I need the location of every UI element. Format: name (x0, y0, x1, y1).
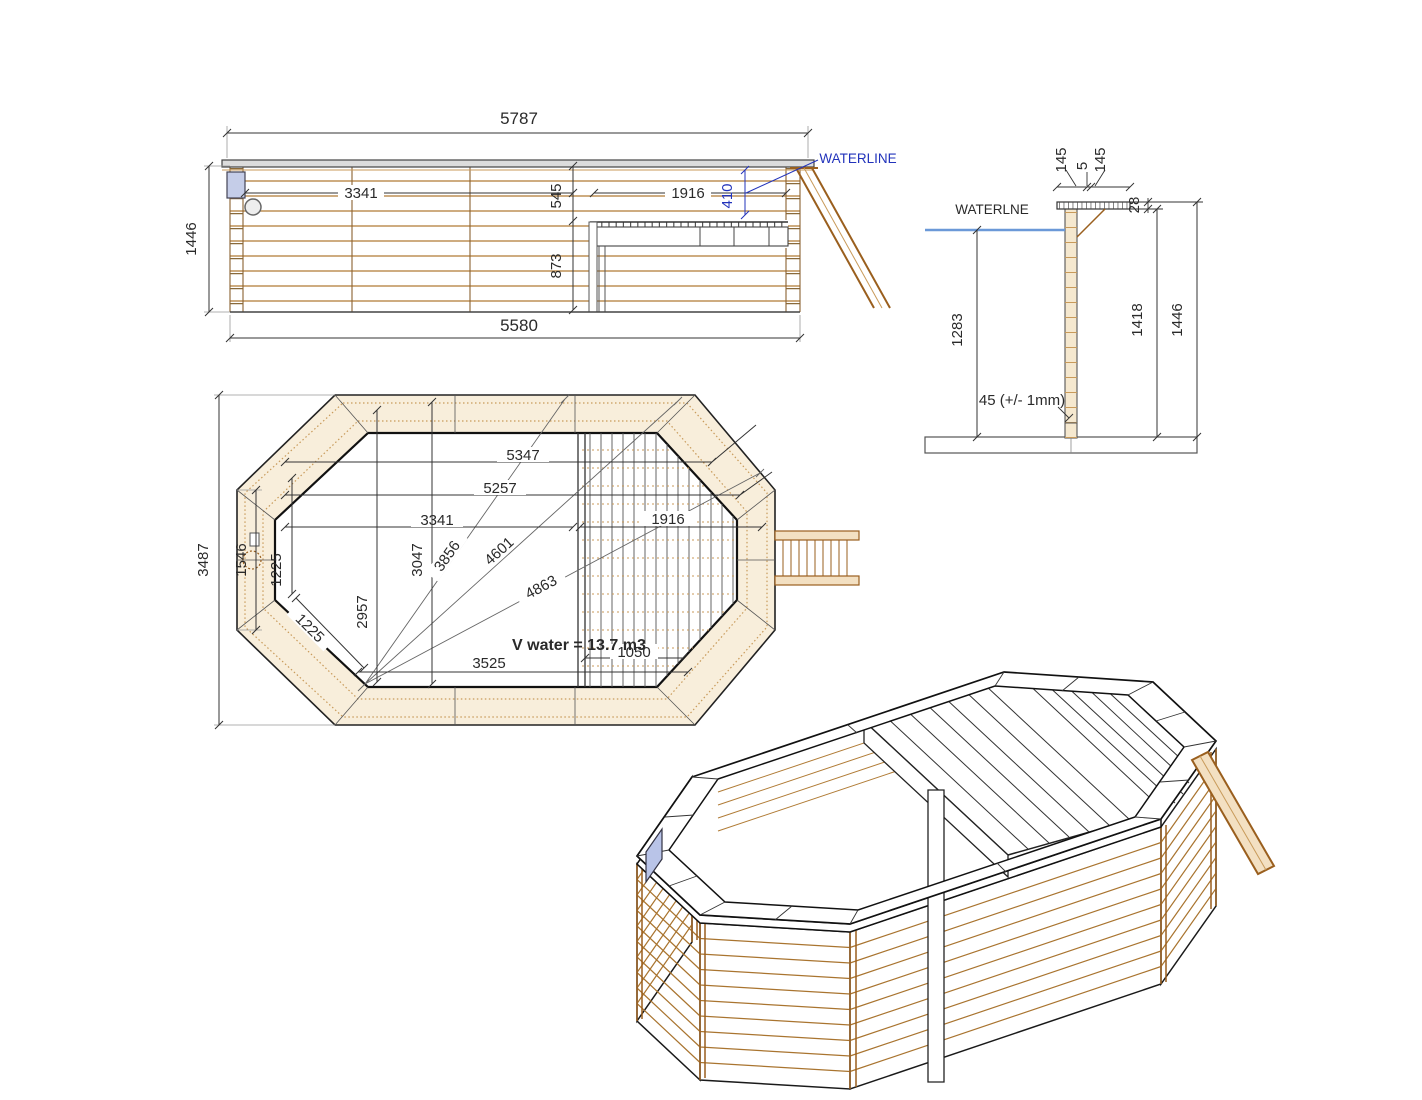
dim-overall-width: 5787 (500, 109, 538, 128)
plan-ladder-rail-top (775, 531, 859, 540)
volume-label: V water = 13.7 m3 (512, 637, 646, 654)
plan-skimmer (250, 533, 259, 546)
dim-overall-height: 1446 (1169, 303, 1186, 336)
plan-ladder-rungs (783, 540, 847, 576)
plan-ladder-rail-bottom (775, 576, 859, 585)
dim-line-1446 (205, 162, 213, 316)
dim-corner-offset: 1225 (268, 553, 285, 586)
deck-joists (596, 227, 788, 246)
dim-line-3487 (215, 391, 223, 729)
dim-coping-inner: 145 (1092, 147, 1109, 172)
dim-diag-long: 5347 (506, 447, 539, 464)
label-ray-mid: 4601 (474, 528, 524, 575)
ext-lines-top (227, 126, 808, 158)
waterline-label: WATERLINE (819, 151, 896, 166)
dim-ray-long: 4863 (523, 572, 560, 603)
skimmer-box (227, 172, 245, 198)
dim-line-5787 (223, 129, 812, 137)
deck-post (589, 222, 597, 312)
dim-inner-width-b: 2957 (354, 595, 371, 628)
dim-line-3047 (428, 398, 436, 688)
wall-column (1065, 205, 1077, 438)
coping-rail (222, 160, 814, 167)
technical-drawing-page: 5787 1446 5580 3341 1916 545 873 410 WAT… (0, 0, 1422, 1100)
dim-span-deck: 1916 (651, 511, 684, 528)
dim-line-3525 (354, 668, 692, 676)
dim-lower-drop: 873 (548, 253, 565, 278)
dim-left-span: 3341 (344, 185, 377, 202)
view-wall-section: WATERLNE 145 5 145 28 1283 1418 1446 45 … (925, 147, 1203, 453)
dim-water-depth: 1283 (949, 313, 966, 346)
elevation-ladder (790, 168, 890, 308)
dim-line-2957 (373, 406, 381, 686)
view-plan: 5347 5257 3341 1916 3487 1546 3047 2957 … (195, 391, 859, 729)
iso-deck-support-post (928, 790, 944, 1082)
note-floor-plank: 45 (+/- 1mm) (979, 392, 1065, 409)
dim-wall-height: 1418 (1129, 303, 1146, 336)
dim-side-panel: 1546 (233, 543, 250, 576)
view-side-elevation: 5787 1446 5580 3341 1916 545 873 410 WAT… (183, 109, 897, 342)
dim-overall-width-plan: 3487 (195, 543, 212, 576)
dim-span-left: 3341 (420, 512, 453, 529)
dim-base-width: 5580 (500, 316, 538, 335)
ring-inner-outline (275, 433, 737, 687)
dim-coping-gap: 5 (1074, 162, 1091, 170)
dim-coping-thickness: 28 (1126, 197, 1143, 214)
return-fitting (245, 199, 261, 215)
dim-coping-outer: 145 (1053, 147, 1070, 172)
wall-ring (237, 395, 775, 725)
section-waterline-label: WATERLNE (955, 202, 1029, 217)
dim-rim-drop: 545 (548, 183, 565, 208)
elevation-ladder-rail (804, 168, 882, 308)
dim-inner-width: 3047 (409, 543, 426, 576)
view-isometric (637, 672, 1274, 1089)
dim-diag-second: 5257 (483, 480, 516, 497)
dim-line-5580 (226, 334, 804, 342)
dim-total-height: 1446 (183, 222, 200, 255)
coping-section (1057, 202, 1130, 209)
base-slab (925, 437, 1197, 453)
label-ray-long: 4863 (514, 568, 568, 607)
coping-brace (1077, 209, 1105, 237)
dim-waterline-drop: 410 (719, 183, 736, 208)
dim-right-span: 1916 (671, 185, 704, 202)
dim-line-545-873 (569, 162, 577, 314)
ext-lines-left (204, 166, 230, 312)
dim-floor-span: 3525 (472, 655, 505, 672)
drawing-canvas: 5787 1446 5580 3341 1916 545 873 410 WAT… (0, 0, 1422, 1100)
